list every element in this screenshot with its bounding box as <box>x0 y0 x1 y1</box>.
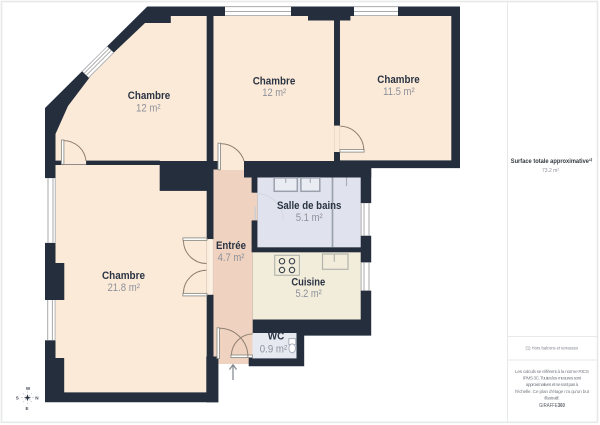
svg-text:12 m²: 12 m² <box>136 103 161 115</box>
svg-text:Cuisine: Cuisine <box>291 276 325 288</box>
svg-text:WC: WC <box>268 331 285 343</box>
svg-text:Chambre: Chambre <box>102 270 145 282</box>
svg-text:illustratif.: illustratif. <box>544 396 559 402</box>
svg-text:11.5 m²: 11.5 m² <box>383 86 415 98</box>
svg-text:Chambre: Chambre <box>253 75 296 87</box>
svg-text:S: S <box>16 396 19 401</box>
svg-text:(1) Hors balcons et terrasses: (1) Hors balcons et terrasses <box>526 345 579 351</box>
svg-text:21.8 m²: 21.8 m² <box>107 282 140 294</box>
svg-text:Les calculs se réfèrent à la n: Les calculs se réfèrent à la norme RICS <box>515 369 589 375</box>
svg-text:4.7 m²: 4.7 m² <box>218 252 245 264</box>
svg-text:W: W <box>26 386 31 391</box>
svg-text:Surface totale approximative¹⁾: Surface totale approximative¹⁾ <box>511 157 593 165</box>
svg-text:0.9 m²: 0.9 m² <box>260 343 288 355</box>
svg-text:IPMS 3C. Toutes les mesures so: IPMS 3C. Toutes les mesures sont <box>523 376 582 382</box>
svg-text:Salle de bains: Salle de bains <box>277 200 342 212</box>
svg-text:Entrée: Entrée <box>216 240 246 252</box>
svg-text:Chambre: Chambre <box>128 90 171 102</box>
svg-text:73.2 m²: 73.2 m² <box>542 168 559 174</box>
svg-text:Chambre: Chambre <box>377 74 420 86</box>
svg-text:5.1 m²: 5.1 m² <box>296 212 323 224</box>
svg-text:E: E <box>26 406 29 411</box>
svg-text:l'échelle. Ce plan d'étage n'a: l'échelle. Ce plan d'étage n'a qu'un but <box>515 389 590 395</box>
svg-text:12 m²: 12 m² <box>262 87 286 99</box>
svg-text:approximatives et ne sont pas: approximatives et ne sont pas à <box>526 382 579 388</box>
svg-text:GIRAFFE360: GIRAFFE360 <box>539 403 565 409</box>
svg-text:5.2 m²: 5.2 m² <box>295 288 322 300</box>
